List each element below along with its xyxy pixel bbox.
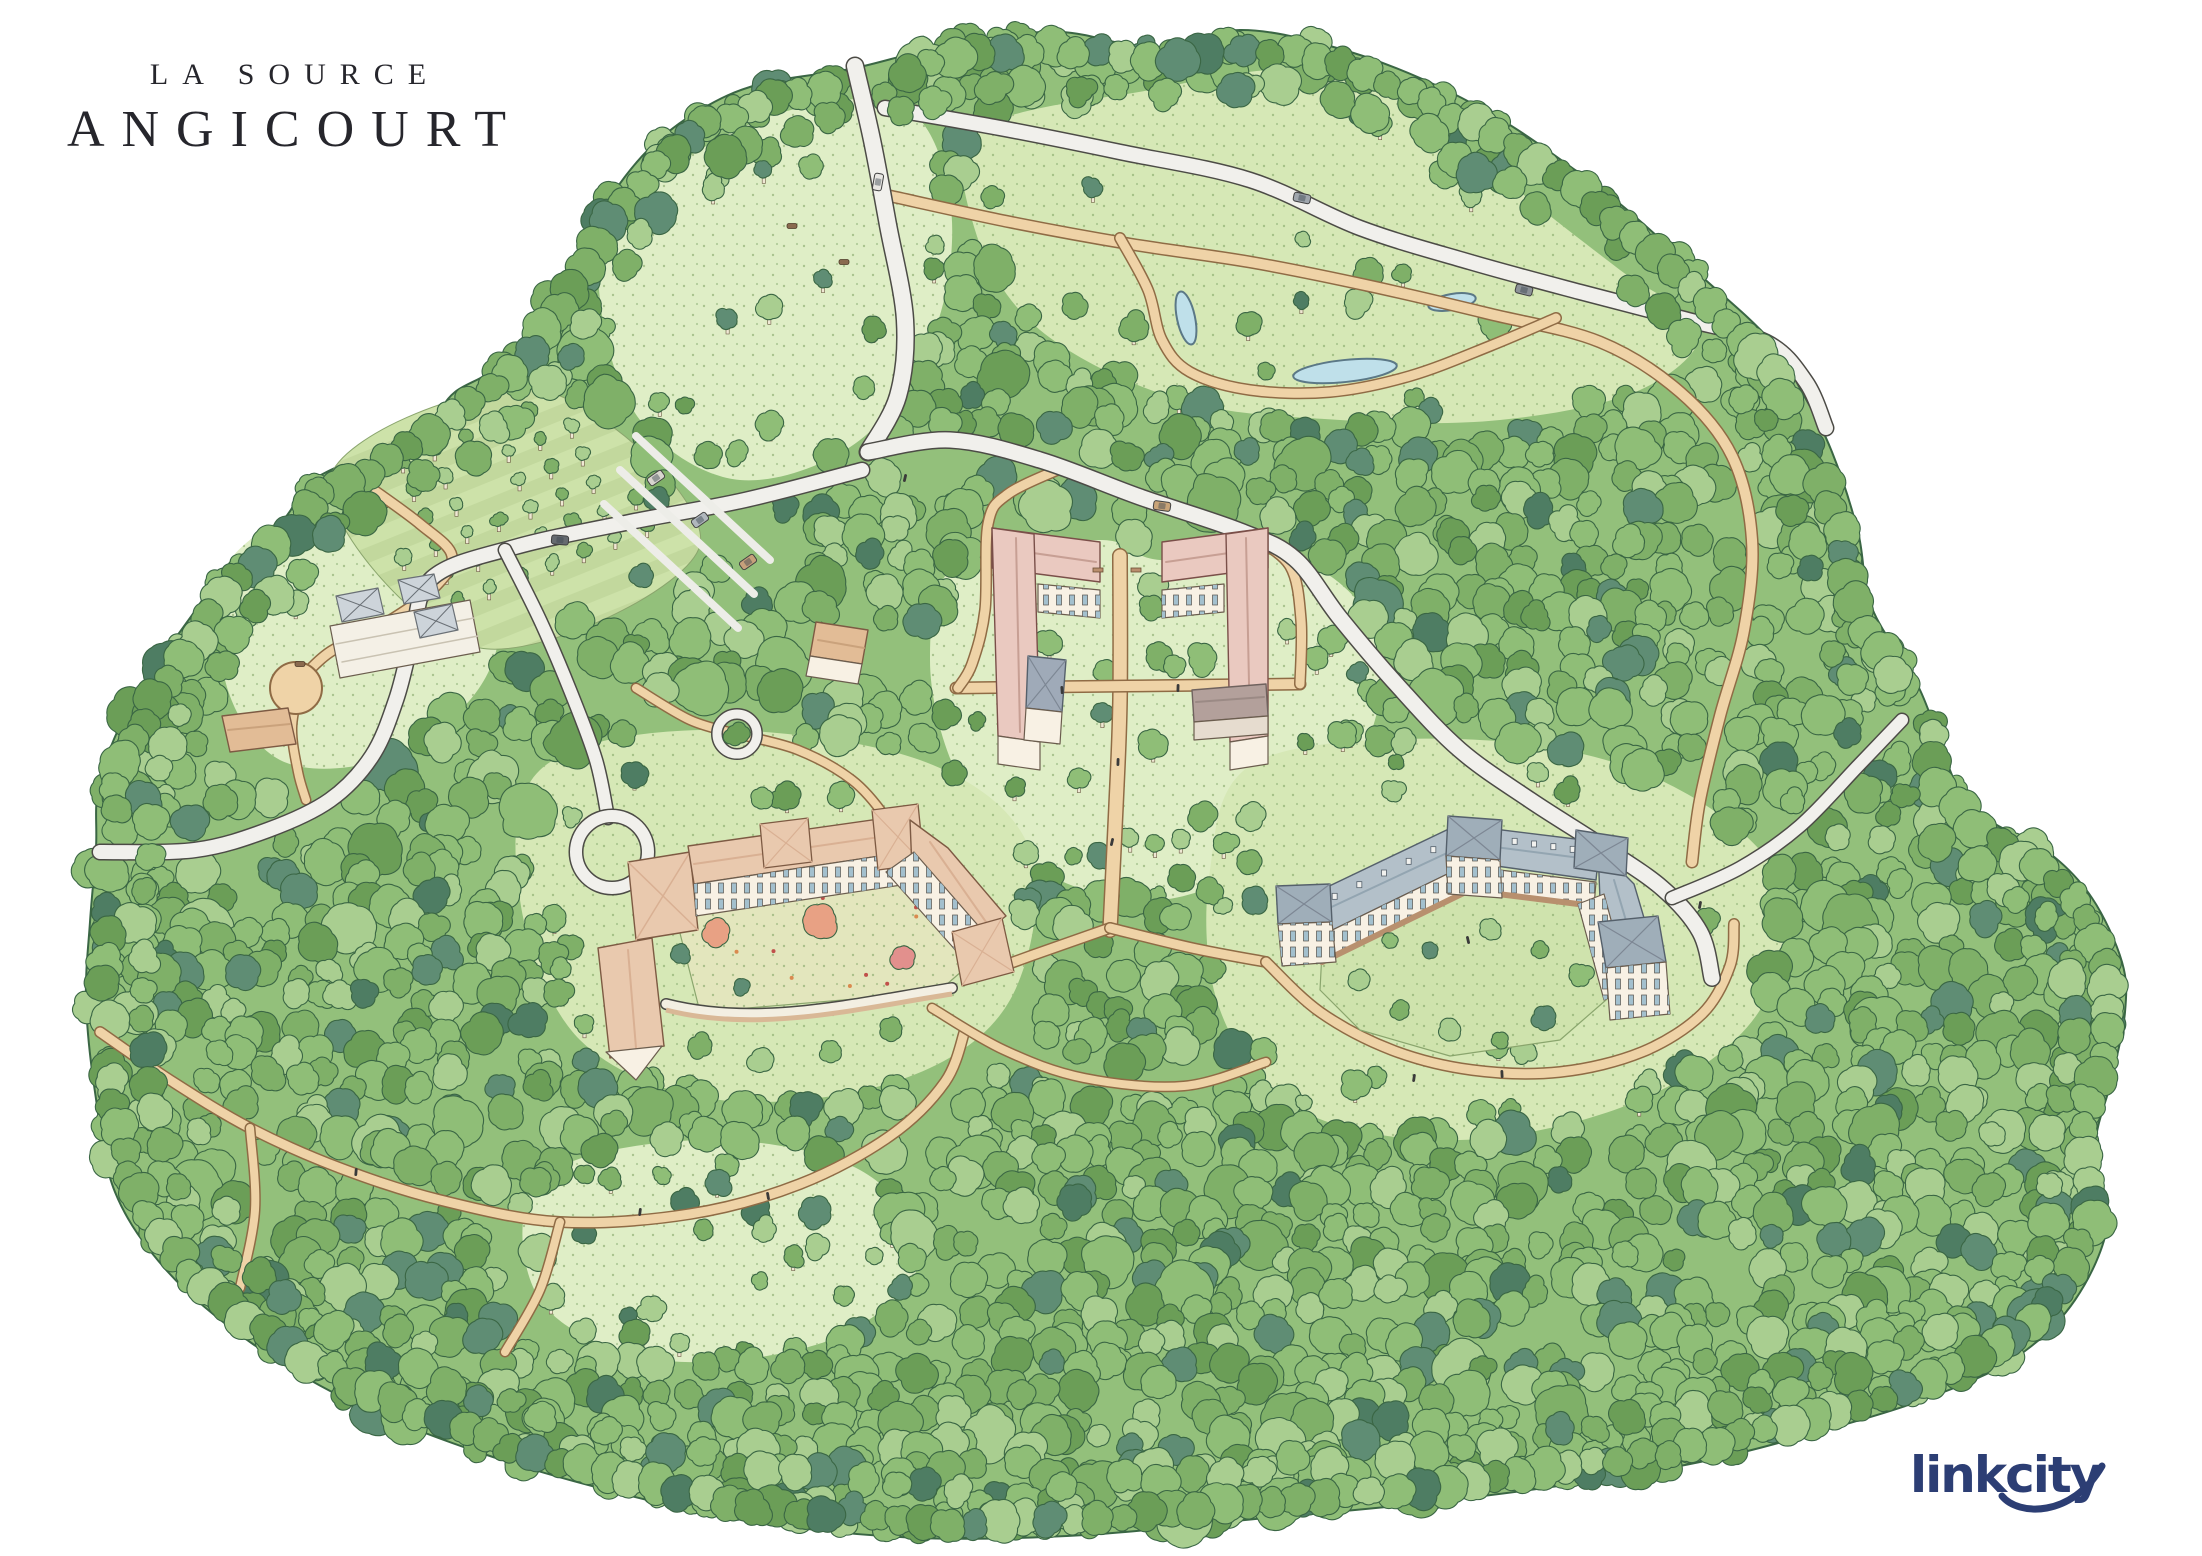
tree [1067,768,1091,789]
tree [1837,664,1869,696]
tree [819,1041,841,1063]
farm-plaza [270,662,322,714]
flower [914,914,918,918]
tree [488,1094,523,1130]
tree [523,500,538,513]
person [1176,684,1179,692]
tree [950,1262,987,1297]
dormer [1382,870,1387,876]
tree [529,365,567,400]
tree [1065,847,1082,864]
tree [1729,1218,1757,1250]
dormer [1332,893,1337,899]
chapel [1024,656,1066,744]
barn [1192,684,1268,740]
car [1153,500,1171,511]
tree [1422,942,1438,959]
flower [790,976,794,980]
tree [1670,701,1707,735]
tree [1702,339,1727,363]
tree [101,795,132,823]
dormer [1357,882,1362,888]
tree [1943,1012,1975,1045]
flower [885,982,889,986]
chapel-base [1024,708,1062,744]
dormer [1532,841,1537,847]
tree [1242,886,1268,914]
site-map-page: LA SOURCE ANGICOURT linkcity [0,0,2202,1556]
tree [84,965,119,1001]
tree [1608,1322,1647,1359]
tree [887,96,914,125]
car-roof [556,537,563,544]
tree [1034,1021,1060,1049]
tree [461,526,473,538]
tree [880,1017,902,1042]
tree [744,1451,783,1490]
dormer [1406,858,1411,864]
tree [1655,1441,1681,1470]
flower [848,984,852,988]
tree [576,447,591,461]
north-pavilion-facade-windows [1446,856,1502,898]
west-pavilion-facade-windows [1278,922,1336,966]
tree [1869,1386,1898,1411]
car-roof [1158,503,1166,510]
person [1060,686,1063,694]
dormer [1512,838,1517,844]
person [1116,758,1119,766]
flower [735,950,739,954]
horse [787,224,797,229]
tree [1626,1168,1657,1199]
dormer [1551,844,1556,850]
tree [1160,904,1192,931]
tree [412,955,442,985]
illustrated-site-map [0,0,2202,1556]
tree [1531,1006,1556,1031]
horse [839,260,849,265]
car [551,535,569,545]
tree [705,1170,732,1197]
tree [987,1063,1010,1088]
tree [136,844,166,871]
tree [1825,824,1850,851]
horse [295,662,305,667]
tree [1258,362,1275,380]
barn-roof [1192,684,1268,722]
tree [2029,1114,2065,1151]
tree [2058,1018,2091,1055]
bench [1093,568,1103,572]
flower [864,973,868,977]
tree [751,787,773,809]
dormer [1431,847,1436,853]
tree [394,548,412,566]
tree [834,1286,855,1306]
flower [772,949,776,953]
tree [2036,1173,2062,1199]
tree [1663,1249,1685,1271]
gable-end [1230,736,1268,770]
tree [1328,722,1357,749]
tree [1388,754,1403,769]
tree [670,1333,690,1352]
tree [1705,1303,1729,1327]
car-roof [874,178,881,186]
site-title: LA SOURCE ANGICOURT [40,58,550,159]
tree [1236,312,1262,337]
tree [1237,850,1262,875]
tree [693,1352,720,1380]
tree [313,515,346,552]
tree [1936,1110,1967,1141]
tree [1797,555,1823,581]
tree [1087,1424,1110,1447]
person [1500,1070,1503,1078]
tree [1762,898,1803,942]
tree [226,955,261,991]
tree [254,778,289,818]
tree [450,497,463,510]
tree [866,1247,883,1264]
garden-house [806,622,868,684]
tree [803,904,837,939]
bench [1131,568,1141,572]
tree [544,459,559,474]
garden-shed [222,708,296,752]
tree [502,445,515,456]
tree [694,441,722,468]
southeast-pavilion-facade-windows [1606,962,1670,1020]
tree [2028,1203,2070,1240]
site-title-line1: LA SOURCE [40,58,550,92]
tree [1348,969,1370,991]
site-title-line2: ANGICOURT [40,100,550,159]
tree [1106,959,1140,992]
tree [1091,703,1113,723]
linkcity-logo: linkcity [1902,1440,2132,1530]
tree [1172,829,1191,849]
